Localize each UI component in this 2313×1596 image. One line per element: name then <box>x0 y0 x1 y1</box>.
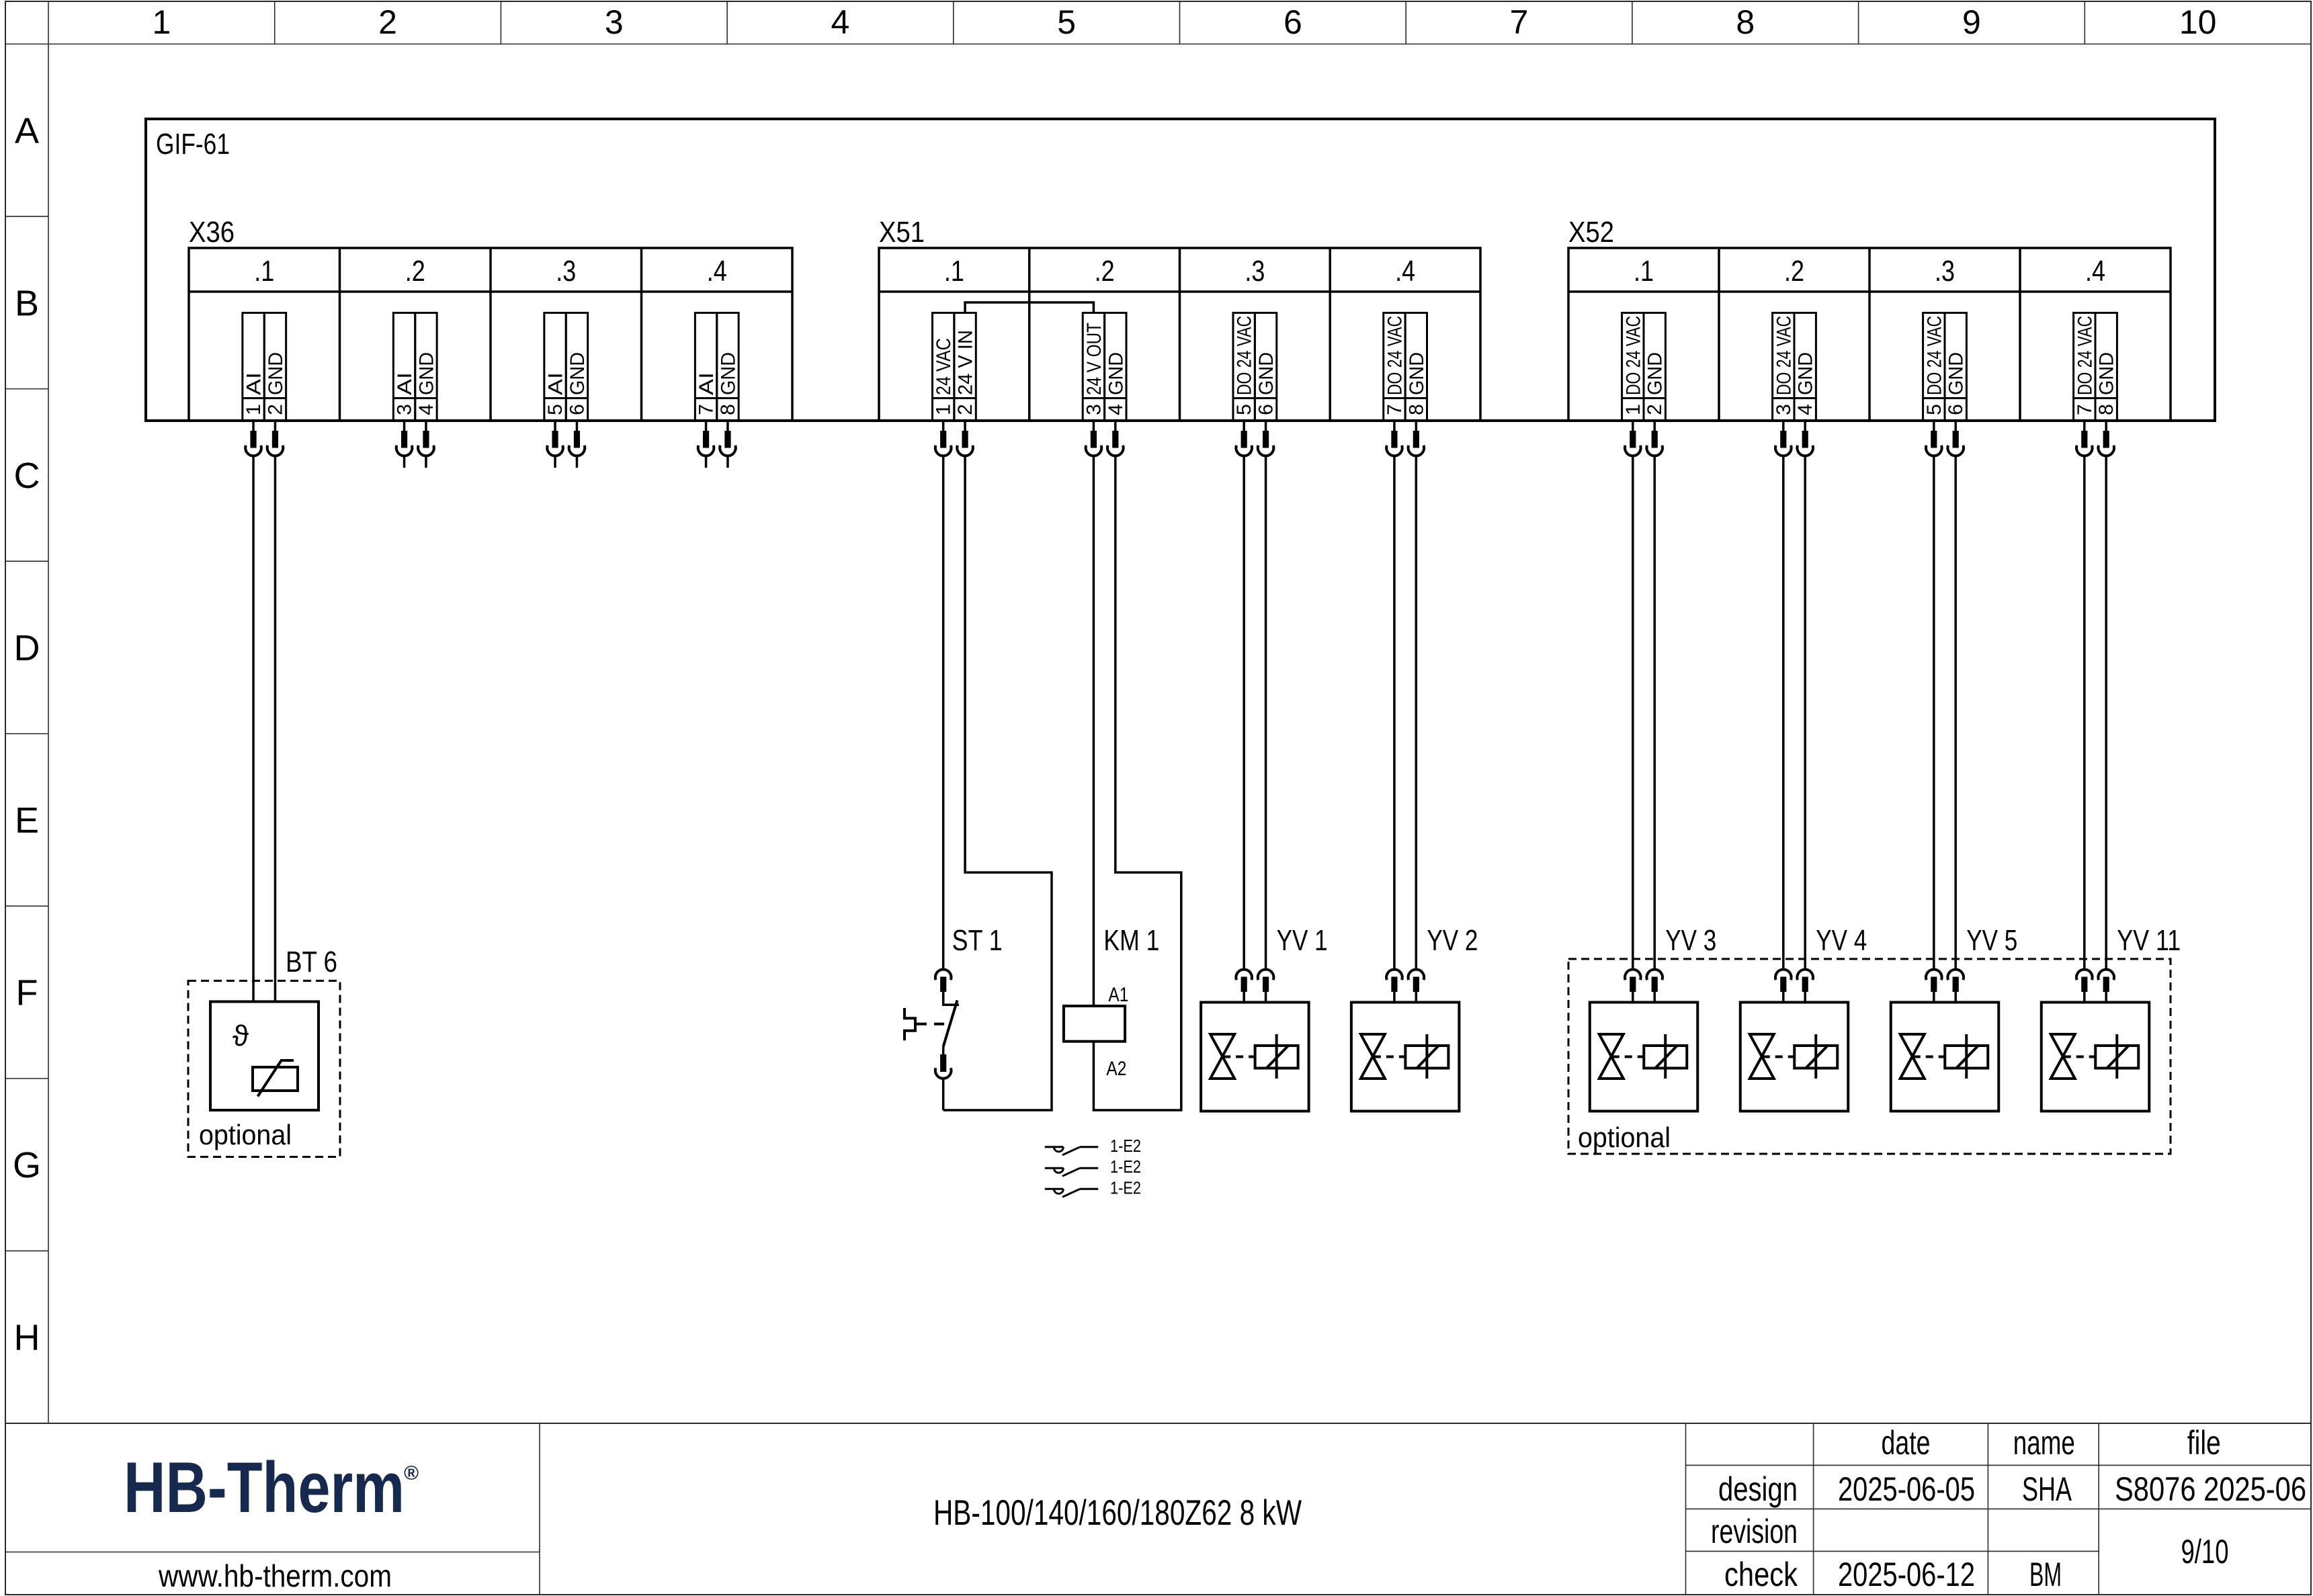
svg-text:A1: A1 <box>1108 984 1128 1006</box>
svg-text:A2: A2 <box>1106 1058 1126 1080</box>
svg-text:7: 7 <box>696 404 718 415</box>
svg-text:YV 11: YV 11 <box>2117 924 2181 957</box>
svg-text:2: 2 <box>264 404 286 415</box>
svg-text:3: 3 <box>1773 404 1795 415</box>
svg-text:2025-06-12: 2025-06-12 <box>1838 1556 1975 1593</box>
svg-text:2: 2 <box>1644 404 1666 415</box>
svg-text:4: 4 <box>415 404 437 415</box>
svg-text:AI: AI <box>394 372 416 395</box>
svg-text:1: 1 <box>933 404 955 415</box>
svg-text:2025-06-05: 2025-06-05 <box>1838 1470 1975 1508</box>
svg-text:.2: .2 <box>1095 255 1115 288</box>
svg-text:E: E <box>15 800 39 841</box>
svg-text:4: 4 <box>1105 404 1127 415</box>
svg-text:5: 5 <box>1923 404 1945 415</box>
svg-text:DO 24 VAC: DO 24 VAC <box>2074 316 2096 395</box>
svg-text:6: 6 <box>1255 404 1277 415</box>
svg-text:A: A <box>15 111 39 151</box>
svg-text:24 V OUT: 24 V OUT <box>1083 323 1105 395</box>
svg-text:date: date <box>1882 1424 1931 1462</box>
svg-text:H: H <box>14 1318 40 1358</box>
svg-text:GND: GND <box>717 352 739 395</box>
svg-text:G: G <box>13 1145 41 1185</box>
svg-text:9: 9 <box>1962 3 1981 41</box>
svg-text:GND: GND <box>415 352 437 395</box>
svg-text:®: ® <box>404 1462 419 1484</box>
svg-text:9/10: 9/10 <box>2181 1533 2229 1570</box>
svg-text:BT 6: BT 6 <box>286 946 337 978</box>
svg-text:4: 4 <box>831 3 850 41</box>
svg-text:design: design <box>1718 1470 1798 1508</box>
svg-text:24 V IN: 24 V IN <box>955 330 977 395</box>
svg-text:AI: AI <box>545 372 567 395</box>
svg-text:6: 6 <box>1284 3 1302 41</box>
svg-text:GIF-61: GIF-61 <box>156 128 230 161</box>
svg-text:optional: optional <box>199 1119 292 1150</box>
svg-text:B: B <box>15 283 39 323</box>
svg-text:check: check <box>1724 1556 1798 1593</box>
svg-text:.1: .1 <box>254 255 274 288</box>
svg-text:1: 1 <box>152 3 171 41</box>
svg-text:YV 1: YV 1 <box>1277 924 1328 957</box>
svg-text:1: 1 <box>1622 404 1644 415</box>
svg-text:AI: AI <box>243 372 265 395</box>
svg-text:www.hb-therm.com: www.hb-therm.com <box>158 1558 392 1593</box>
svg-text:HB-Therm: HB-Therm <box>124 1447 405 1527</box>
svg-text:AI: AI <box>696 372 718 395</box>
svg-text:BM: BM <box>2029 1556 2062 1593</box>
svg-text:GND: GND <box>566 352 589 395</box>
svg-text:1-E2: 1-E2 <box>1110 1157 1141 1177</box>
svg-text:YV 3: YV 3 <box>1665 924 1716 957</box>
svg-text:ϑ: ϑ <box>233 1019 249 1052</box>
svg-text:.4: .4 <box>707 255 727 288</box>
svg-text:GND: GND <box>1255 352 1277 395</box>
svg-text:DO 24 VAC: DO 24 VAC <box>1384 316 1406 395</box>
svg-text:C: C <box>14 456 40 496</box>
svg-text:GND: GND <box>1105 352 1127 395</box>
svg-text:file: file <box>2187 1424 2221 1462</box>
svg-text:DO 24 VAC: DO 24 VAC <box>1773 316 1795 395</box>
svg-text:6: 6 <box>566 404 588 415</box>
svg-text:.3: .3 <box>1245 255 1265 288</box>
svg-text:YV 5: YV 5 <box>1966 924 2017 957</box>
svg-text:S8076 2025-06: S8076 2025-06 <box>2115 1470 2306 1508</box>
svg-text:GND: GND <box>1644 352 1667 395</box>
svg-text:10: 10 <box>2179 3 2217 41</box>
svg-text:24 VAC: 24 VAC <box>933 338 955 395</box>
svg-text:GND: GND <box>2096 352 2118 395</box>
svg-text:.2: .2 <box>1784 255 1804 288</box>
svg-text:D: D <box>14 628 40 668</box>
svg-text:X52: X52 <box>1568 216 1614 249</box>
svg-text:5: 5 <box>1057 3 1076 41</box>
svg-text:.3: .3 <box>1935 255 1955 288</box>
svg-text:HB-100/140/160/180Z62 8 kW: HB-100/140/160/180Z62 8 kW <box>933 1493 1302 1533</box>
svg-text:GND: GND <box>1945 352 1968 395</box>
svg-text:1-E2: 1-E2 <box>1110 1136 1141 1156</box>
svg-text:SHA: SHA <box>2022 1470 2072 1508</box>
svg-text:revision: revision <box>1711 1513 1798 1550</box>
svg-text:6: 6 <box>1945 404 1967 415</box>
svg-text:3: 3 <box>1083 404 1105 415</box>
svg-text:.3: .3 <box>556 255 576 288</box>
svg-text:1-E2: 1-E2 <box>1110 1177 1141 1198</box>
svg-text:7: 7 <box>1384 404 1406 415</box>
svg-text:GND: GND <box>1406 352 1428 395</box>
svg-text:KM 1: KM 1 <box>1103 924 1159 957</box>
svg-text:.1: .1 <box>1634 255 1654 288</box>
svg-text:7: 7 <box>2074 404 2096 415</box>
svg-text:8: 8 <box>1736 3 1755 41</box>
svg-text:YV 4: YV 4 <box>1816 924 1867 957</box>
svg-text:2: 2 <box>378 3 397 41</box>
svg-text:8: 8 <box>1405 404 1427 415</box>
svg-text:X36: X36 <box>189 216 235 249</box>
svg-text:5: 5 <box>544 404 566 415</box>
svg-text:.4: .4 <box>1395 255 1415 288</box>
svg-text:8: 8 <box>2095 404 2117 415</box>
svg-text:8: 8 <box>717 404 739 415</box>
svg-text:.1: .1 <box>944 255 964 288</box>
svg-text:3: 3 <box>394 404 416 415</box>
svg-text:F: F <box>16 973 38 1013</box>
svg-text:X51: X51 <box>879 216 925 249</box>
svg-text:DO 24 VAC: DO 24 VAC <box>1923 316 1945 395</box>
svg-text:7: 7 <box>1510 3 1529 41</box>
svg-text:GND: GND <box>265 352 287 395</box>
svg-text:GND: GND <box>1795 352 1817 395</box>
svg-text:2: 2 <box>954 404 976 415</box>
svg-text:ST 1: ST 1 <box>952 924 1003 957</box>
svg-text:name: name <box>2013 1424 2075 1462</box>
svg-text:.2: .2 <box>405 255 425 288</box>
svg-text:1: 1 <box>243 404 265 415</box>
svg-text:4: 4 <box>1794 404 1816 415</box>
svg-text:3: 3 <box>605 3 624 41</box>
svg-text:YV 2: YV 2 <box>1427 924 1478 957</box>
svg-text:DO 24 VAC: DO 24 VAC <box>1234 316 1256 395</box>
svg-text:DO 24 VAC: DO 24 VAC <box>1622 316 1644 395</box>
svg-text:5: 5 <box>1233 404 1255 415</box>
svg-text:.4: .4 <box>2085 255 2105 288</box>
svg-text:optional: optional <box>1578 1122 1671 1153</box>
